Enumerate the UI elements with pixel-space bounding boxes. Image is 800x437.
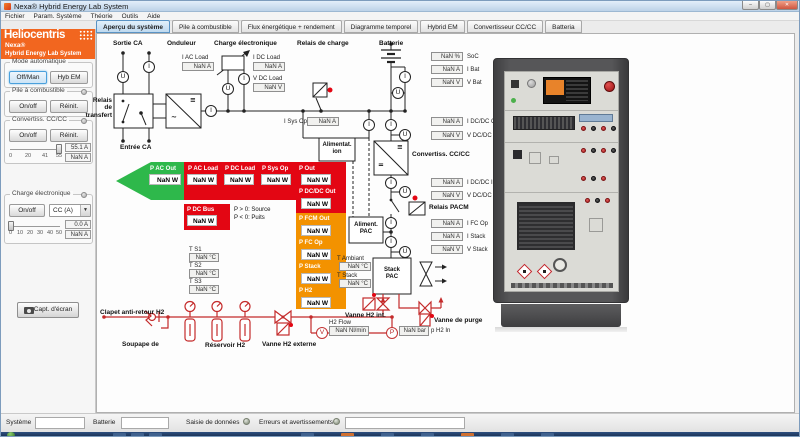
label-clapet-antiretour: Clapet anti-retour H2 (100, 309, 164, 316)
hazard-flammable-icon (537, 264, 553, 280)
label-relais-transfert: Relais de transfert (85, 97, 112, 119)
field-value: NaN A (307, 117, 339, 126)
rack-silkscreen-box (549, 156, 559, 164)
power-label: P FCM Out (299, 216, 330, 222)
conv-actual-value: NaN A (65, 153, 91, 162)
fc-group-title: Pile à combustible (10, 88, 67, 95)
field-value: NaN °C (339, 262, 371, 271)
voltmeter-stack: U (399, 246, 411, 258)
power-value: NaN W (301, 174, 331, 185)
voltmeter-dcdc-out: U (399, 129, 411, 141)
aliment-pac-line2: PAC (360, 229, 372, 235)
brand-dots-icon (79, 30, 93, 41)
aliment-pac-box-label: Aliment. PAC (349, 222, 383, 236)
alimentation-box-label: Alimentat. ion (319, 142, 355, 156)
taskbar-icon[interactable] (381, 433, 394, 437)
brand-product: Nexa® (5, 43, 25, 50)
label-vanne-h2-int: Vanne H2 int. (345, 312, 386, 319)
field-value: NaN A (431, 219, 463, 228)
close-button[interactable]: ✕ (776, 1, 798, 10)
load-onoff-button[interactable]: On/off (9, 204, 45, 217)
equipment-rack-photo (493, 58, 629, 303)
ammeter-dcdc-out: I (385, 119, 397, 131)
mode-group: Mode automatique Off/Man Hyb EM (4, 62, 93, 88)
field-label: V Stack (467, 247, 488, 254)
field-value: NaN A (431, 117, 463, 126)
taskbar-icon[interactable] (131, 433, 144, 437)
rack-shadow (495, 327, 627, 332)
brand-subtitle: Hybrid Energy Lab System (5, 51, 81, 57)
hybem-button[interactable]: Hyb EM (50, 71, 88, 84)
window-title: Nexa® Hybrid Energy Lab System (14, 1, 128, 12)
taskbar-icon[interactable] (301, 433, 314, 437)
field-label: I FC Op (467, 221, 488, 228)
voltmeter-sortie-ca: U (117, 71, 129, 83)
taskbar-icon[interactable] (501, 433, 514, 437)
field-label: I Stack (467, 234, 485, 241)
power-label: P AC Out (150, 166, 176, 172)
label-charge-electronique: Charge électronique (214, 40, 277, 47)
conv-onoff-button[interactable]: On/off (9, 129, 47, 142)
power-value: NaN W (301, 249, 331, 260)
chevron-down-icon[interactable]: ▼ (80, 205, 90, 216)
load-actual-value: NaN A (65, 230, 91, 239)
emergency-stop-button (604, 81, 615, 92)
rack-silkscreen-box (589, 218, 603, 232)
pressure-sensor-h2: P (386, 327, 398, 339)
tab-apercu-du-systeme[interactable]: Aperçu du système (96, 20, 170, 33)
ammeter-sortie-ca: I (143, 61, 155, 73)
field-value: NaN A (431, 65, 463, 74)
field-label: I Sys Op (284, 119, 307, 126)
fc-onoff-button[interactable]: On/off (9, 100, 47, 113)
voltmeter-dcdc-in: U (399, 186, 411, 198)
power-label: P AC Load (188, 166, 218, 172)
power-value: NaN W (301, 225, 331, 236)
load-tick: 50 (56, 231, 62, 237)
label-sortie-ca: Sortie CA (113, 40, 143, 47)
rack-switch (511, 80, 519, 88)
menu-theorie[interactable]: Théorie (91, 12, 113, 20)
conv-setpoint-value: 55.1 A (65, 143, 91, 152)
power-label: P Sys Op (262, 166, 288, 172)
field-label: V DC Load (253, 76, 282, 83)
taskbar-icon[interactable] (341, 433, 354, 437)
screenshot-button-label: Capt. d'écran (34, 306, 72, 313)
ammeter-sys-op: I (363, 119, 375, 131)
ammeter-fc-op: I (385, 217, 397, 229)
field-label: I AC Load (182, 55, 208, 62)
field-label: I Bat (467, 67, 479, 74)
field-label: I DC Load (253, 55, 280, 62)
stack-pac-box-label: Stack PAC (373, 267, 411, 281)
field-value: NaN V (431, 191, 463, 200)
inverter-ac-symbol: ~ (171, 114, 177, 121)
power-label: P FC Op (299, 240, 323, 246)
rack-display-rows (566, 80, 588, 101)
field-value: NaN % (431, 52, 463, 61)
tab-batteria[interactable]: Batteria (545, 20, 581, 33)
taskbar-icon[interactable] (149, 433, 162, 437)
data-entry-led-icon (243, 418, 250, 425)
load-tick: 30 (37, 231, 43, 237)
start-orb-icon[interactable] (7, 432, 15, 437)
rack-connector-strip (513, 116, 575, 130)
voltmeter-batterie: U (392, 87, 404, 99)
power-value: NaN W (224, 174, 254, 185)
taskbar-icon[interactable] (461, 433, 474, 437)
windows-taskbar[interactable] (1, 432, 800, 437)
power-value: NaN W (301, 273, 331, 284)
label-onduleur: Onduleur (167, 40, 196, 47)
ammeter-dc-load: I (238, 73, 250, 85)
voltmeter-dc-load: U (222, 83, 234, 95)
field-value: NaN A (431, 178, 463, 187)
power-value: NaN W (187, 174, 217, 185)
conv-tick: 55 (56, 154, 62, 160)
title-bar[interactable]: Nexa® Hybrid Energy Lab System – ▢ ✕ (1, 1, 800, 12)
ammeter-ac-load: I (205, 105, 217, 117)
conv-reset-button[interactable]: Réinit. (50, 129, 88, 142)
fuel-cell-group: Pile à combustible On/off Réinit. (4, 91, 93, 117)
load-group-title: Charge électronique (10, 191, 73, 198)
fc-reset-button[interactable]: Réinit. (50, 100, 88, 113)
ammeter-dcdc-in: I (385, 177, 397, 189)
maximize-button[interactable]: ▢ (759, 1, 776, 10)
field-value: NaN °C (189, 285, 219, 294)
field-value: NaN bar (399, 326, 429, 336)
tab-bar: Aperçu du système Pile à combustible Flu… (96, 20, 582, 33)
power-value: NaN W (149, 174, 181, 185)
dcdc-converter-group: Convertiss. CC/CC On/off Réinit. 0 20 41… (4, 120, 93, 164)
note-source: P > 0: Source (234, 207, 270, 213)
ammeter-batterie: I (399, 71, 411, 83)
alimentation-line1: Alimentat. (322, 142, 351, 148)
ammeter-stack: I (385, 236, 397, 248)
field-label: V Bat (467, 80, 482, 87)
alimentation-line2: ion (333, 149, 342, 155)
screenshot-button[interactable]: Capt. d'écran (17, 302, 79, 318)
offman-button[interactable]: Off/Man (9, 71, 47, 84)
stack-line1: Stack (384, 267, 400, 273)
status-system-label: Système (6, 420, 31, 427)
field-value: NaN Nl/min (329, 326, 369, 336)
power-value: NaN W (301, 198, 331, 209)
load-setpoint-value: 0.0 A (65, 220, 91, 229)
status-errors-label: Erreurs et avertissements (259, 420, 333, 427)
app-icon (4, 3, 11, 10)
rack-pressure-gauge (553, 258, 567, 272)
status-battery-label: Batterie (93, 420, 115, 427)
load-tick: 0 (9, 231, 12, 237)
fc-status-led-icon (81, 89, 87, 95)
field-value: NaN V (253, 83, 285, 92)
field-value: NaN °C (189, 253, 219, 262)
hazard-diamond-icon (517, 264, 533, 280)
rack-pedestal (501, 304, 621, 327)
brand-name: Heliocentris (4, 30, 65, 42)
menu-aide[interactable]: Aide (147, 12, 160, 20)
field-value: NaN V (431, 245, 463, 254)
power-label: P DC Load (225, 166, 255, 172)
label-vanne-h2-externe: Vanne H2 externe (262, 341, 316, 348)
conv-tick: 0 (9, 154, 12, 160)
field-value: NaN °C (189, 269, 219, 278)
load-tick: 40 (47, 231, 53, 237)
rack-lcd (579, 114, 613, 122)
taskbar-icon[interactable] (541, 433, 554, 437)
field-label: SoC (467, 54, 479, 61)
rack-green-led (511, 98, 516, 103)
menu-param-systeme[interactable]: Param. Système (34, 12, 82, 20)
status-system-field (35, 417, 85, 429)
rack-base-strip (511, 283, 613, 288)
tab-hybrid-em[interactable]: Hybrid EM (420, 20, 464, 33)
dcdc-top-symbol: ≡ (397, 144, 403, 151)
field-value: NaN A (182, 62, 214, 71)
rack-front-panel (504, 71, 619, 292)
power-label: P Out (299, 166, 315, 172)
rack-module-switch (513, 150, 522, 159)
conv-slider-track (10, 149, 62, 150)
label-batterie: Batterie (379, 40, 403, 47)
load-mode-dropdown[interactable]: CC (A) ▼ (49, 204, 91, 217)
power-label: P DC/DC Out (299, 189, 336, 195)
aliment-pac-line1: Aliment. (354, 222, 378, 228)
menu-fichier[interactable]: Fichier (5, 12, 25, 20)
load-mode-value: CC (A) (53, 207, 73, 214)
field-value: NaN A (431, 232, 463, 241)
tab-convertisseur[interactable]: Convertisseur CC/CC (467, 20, 544, 33)
field-value: NaN A (253, 62, 285, 71)
load-status-led-icon (81, 192, 87, 198)
field-label: I DC/DC In (467, 180, 496, 187)
minimize-button[interactable]: – (742, 1, 759, 10)
status-message-field (345, 417, 465, 429)
power-value: NaN W (187, 215, 217, 226)
label-relais-pacm: Relais PACM (429, 204, 469, 211)
load-tick: 10 (17, 231, 23, 237)
load-tick: 20 (27, 231, 33, 237)
mode-group-title: Mode automatique (10, 59, 68, 66)
power-value: NaN W (261, 174, 291, 185)
rack-vent-grille (517, 202, 575, 250)
label-vanne-de-purge: Vanne de purge (434, 317, 482, 324)
label-convertisseur-cccc: Convertiss. CC/CC (412, 151, 470, 158)
errors-led-icon (333, 418, 340, 425)
rack-display (543, 77, 591, 104)
electronic-load-group: Charge électronique On/off CC (A) ▼ 0 10… (4, 194, 93, 244)
field-value: NaN V (431, 131, 463, 140)
inverter-dc-symbol: ≡ (190, 97, 196, 104)
dcdc-bottom-symbol: = (378, 162, 384, 169)
field-value: NaN V (431, 78, 463, 87)
label-reservoir-h2: Réservoir H2 (205, 342, 245, 349)
tab-diagramme-temporel[interactable]: Diagramme temporel (344, 20, 419, 33)
label-entree-ca: Entrée CA (120, 144, 151, 151)
heliocentris-logo: Heliocentris Nexa® Hybrid Energy Lab Sys… (1, 29, 95, 59)
load-slider-track (10, 226, 60, 227)
label-relais-de-charge: Relais de charge (297, 40, 349, 47)
conv-group-title: Convertiss. CC/CC (10, 117, 69, 124)
control-sidebar: Heliocentris Nexa® Hybrid Energy Lab Sys… (1, 29, 96, 413)
field-label: p H2 In (431, 328, 450, 335)
camera-icon (24, 307, 34, 314)
taskbar-icon[interactable] (421, 433, 434, 437)
field-value: NaN °C (339, 279, 371, 288)
status-data-entry-label: Saisie de données (186, 420, 240, 427)
app-window: Nexa® Hybrid Energy Lab System – ▢ ✕ Fic… (0, 0, 800, 437)
status-battery-field (121, 417, 169, 429)
power-label: P H2 (299, 288, 312, 294)
power-value: NaN W (301, 297, 331, 308)
conv-tick: 20 (25, 154, 31, 160)
rack-display-content (546, 80, 564, 95)
tab-flux-energetique[interactable]: Flux énergétique + rendement (241, 20, 342, 33)
power-label: P Stack (299, 264, 321, 270)
tab-pile-a-combustible[interactable]: Pile à combustible (172, 20, 239, 33)
stack-line2: PAC (386, 274, 398, 280)
conv-tick: 41 (42, 154, 48, 160)
flowmeter-h2: V (316, 327, 328, 339)
status-bar: Système Batterie Saisie de données Erreu… (1, 413, 800, 432)
menu-outils[interactable]: Outils (122, 12, 139, 20)
power-label: P DC Bus (187, 207, 214, 213)
taskbar-icon[interactable] (113, 433, 126, 437)
rack-knob (527, 79, 536, 88)
note-puits: P < 0: Puits (234, 215, 265, 221)
label-soupape: Soupape de (122, 341, 159, 348)
rack-silkscreen-box (529, 152, 541, 164)
